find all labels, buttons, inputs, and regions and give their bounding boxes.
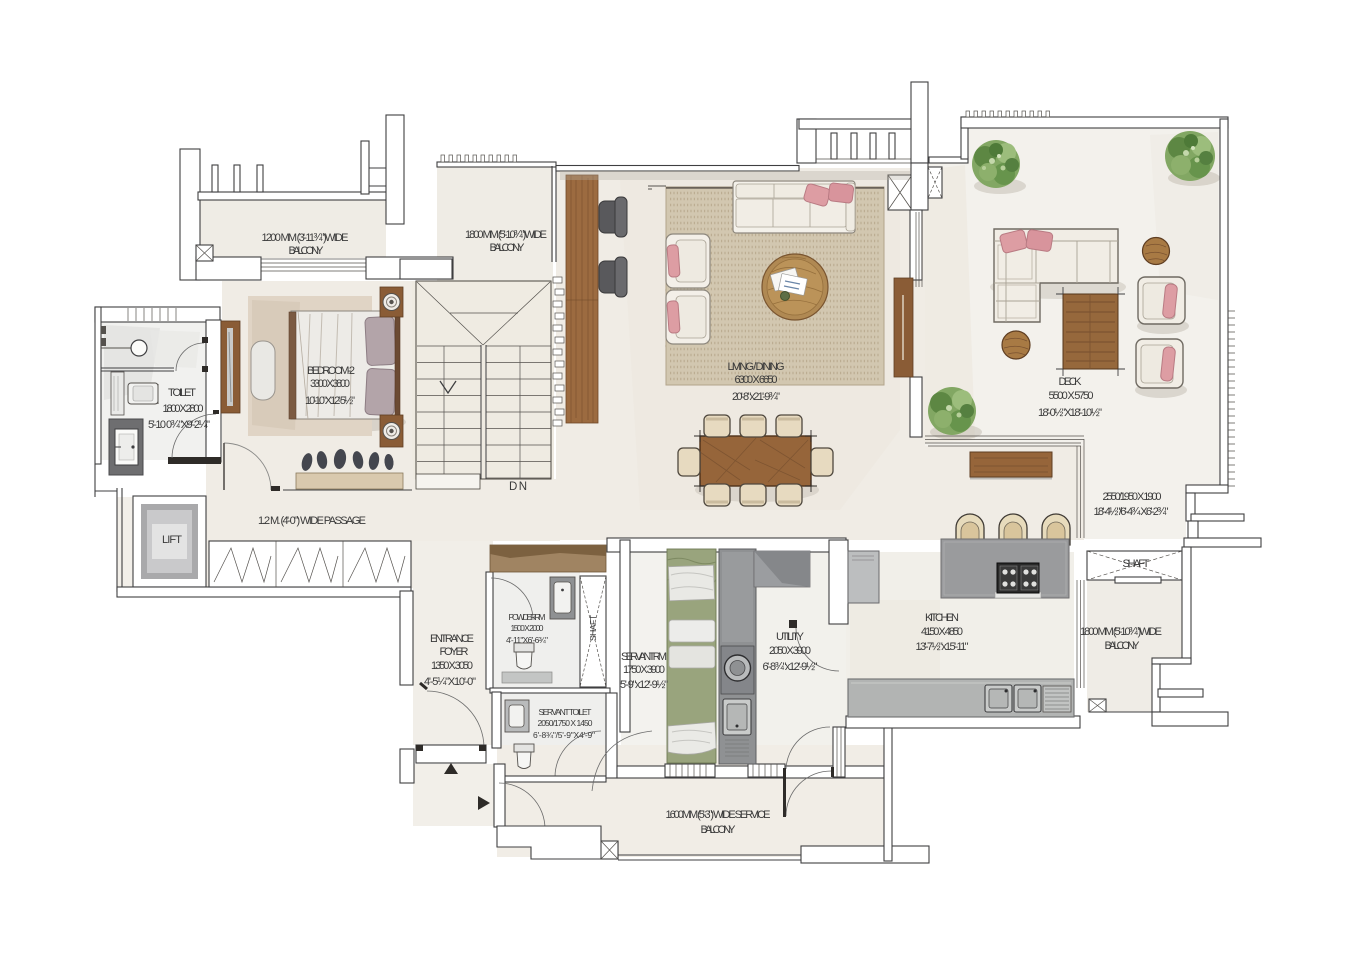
svg-text:10'-10"X12'-5½": 10'-10"X12'-5½" bbox=[305, 395, 355, 407]
svg-text:LIVING / DINING: LIVING / DINING bbox=[728, 361, 785, 373]
svg-text:5'-9"x12'-9½": 5'-9"x12'-9½" bbox=[620, 679, 668, 691]
svg-text:6'-8¾"/5'-9"X4'-9": 6'-8¾"/5'-9"X4'-9" bbox=[533, 730, 595, 740]
svg-text:4'-5¼"X10'-0": 4'-5¼"X10'-0" bbox=[424, 676, 476, 688]
svg-text:FOYER: FOYER bbox=[440, 646, 469, 658]
svg-text:SERVANT TOILET: SERVANT TOILET bbox=[539, 707, 592, 717]
svg-text:1600MM (5'-3") WIDE SERVICE: 1600MM (5'-3") WIDE SERVICE bbox=[666, 809, 771, 821]
svg-text:5'-10 0¾"X9'-2¼": 5'-10 0¾"X9'-2¼" bbox=[148, 419, 210, 431]
svg-text:4'-11"X6'-6¾": 4'-11"X6'-6¾" bbox=[506, 635, 548, 645]
svg-text:DECK: DECK bbox=[1059, 376, 1083, 388]
svg-text:1800 MM (5'-10¾")WIDE: 1800 MM (5'-10¾")WIDE bbox=[1080, 626, 1162, 638]
svg-text:2050/1750 X 1450: 2050/1750 X 1450 bbox=[538, 718, 593, 728]
svg-text:1350 X 3050: 1350 X 3050 bbox=[431, 660, 473, 672]
svg-text:5500 X 5750: 5500 X 5750 bbox=[1049, 390, 1094, 402]
svg-text:SHAFT: SHAFT bbox=[588, 615, 598, 641]
svg-text:1.2 M. (4'-0") WIDE PASSAGE: 1.2 M. (4'-0") WIDE PASSAGE bbox=[258, 515, 366, 527]
svg-text:BALCONY: BALCONY bbox=[490, 242, 526, 254]
svg-text:1200 MM (3'-11¾")WIDE: 1200 MM (3'-11¾")WIDE bbox=[262, 232, 349, 244]
svg-text:BALCONY: BALCONY bbox=[289, 245, 325, 257]
svg-text:DN: DN bbox=[509, 481, 527, 493]
svg-text:18'-0½"X18'-10½": 18'-0½"X18'-10½" bbox=[1038, 407, 1102, 419]
svg-text:18'-4½"/6'-4¾ X6'-2¾": 18'-4½"/6'-4¾ X6'-2¾" bbox=[1094, 506, 1169, 518]
svg-text:LIFT: LIFT bbox=[162, 534, 182, 546]
svg-text:6300 X 6650: 6300 X 6650 bbox=[735, 374, 778, 386]
svg-text:1750 X 3900: 1750 X 3900 bbox=[623, 664, 665, 676]
svg-text:BALCONY: BALCONY bbox=[1105, 640, 1141, 652]
svg-text:1800 MM (5'-10¾")WIDE: 1800 MM (5'-10¾")WIDE bbox=[465, 229, 547, 241]
svg-text:SHAFT: SHAFT bbox=[1123, 558, 1150, 570]
svg-text:ENTRANCE: ENTRANCE bbox=[430, 633, 474, 645]
svg-text:BEDROOM -2: BEDROOM -2 bbox=[307, 365, 355, 377]
svg-text:TOILET: TOILET bbox=[168, 387, 196, 399]
svg-text:2550/1950 X 1900: 2550/1950 X 1900 bbox=[1103, 491, 1162, 503]
svg-text:UTILITY: UTILITY bbox=[776, 631, 805, 643]
svg-text:13'-7½"x15'-11": 13'-7½"x15'-11" bbox=[916, 641, 969, 653]
svg-text:KITCHEN: KITCHEN bbox=[925, 612, 959, 624]
svg-text:SERVANT RM: SERVANT RM bbox=[621, 651, 667, 663]
svg-text:2050 X 3900: 2050 X 3900 bbox=[769, 645, 811, 657]
svg-text:6'-8¾"x12'-9½": 6'-8¾"x12'-9½" bbox=[763, 661, 818, 673]
svg-text:1500 X 2000: 1500 X 2000 bbox=[511, 623, 544, 633]
svg-text:1800 X 2800: 1800 X 2800 bbox=[163, 403, 204, 415]
svg-text:POWDER RM: POWDER RM bbox=[509, 612, 546, 622]
svg-text:20'-8"x21'-9¾": 20'-8"x21'-9¾" bbox=[732, 391, 780, 403]
svg-text:BALCONY: BALCONY bbox=[701, 824, 737, 836]
svg-text:3300 X 3800: 3300 X 3800 bbox=[310, 378, 350, 390]
svg-text:4150 X 4850: 4150 X 4850 bbox=[921, 626, 963, 638]
